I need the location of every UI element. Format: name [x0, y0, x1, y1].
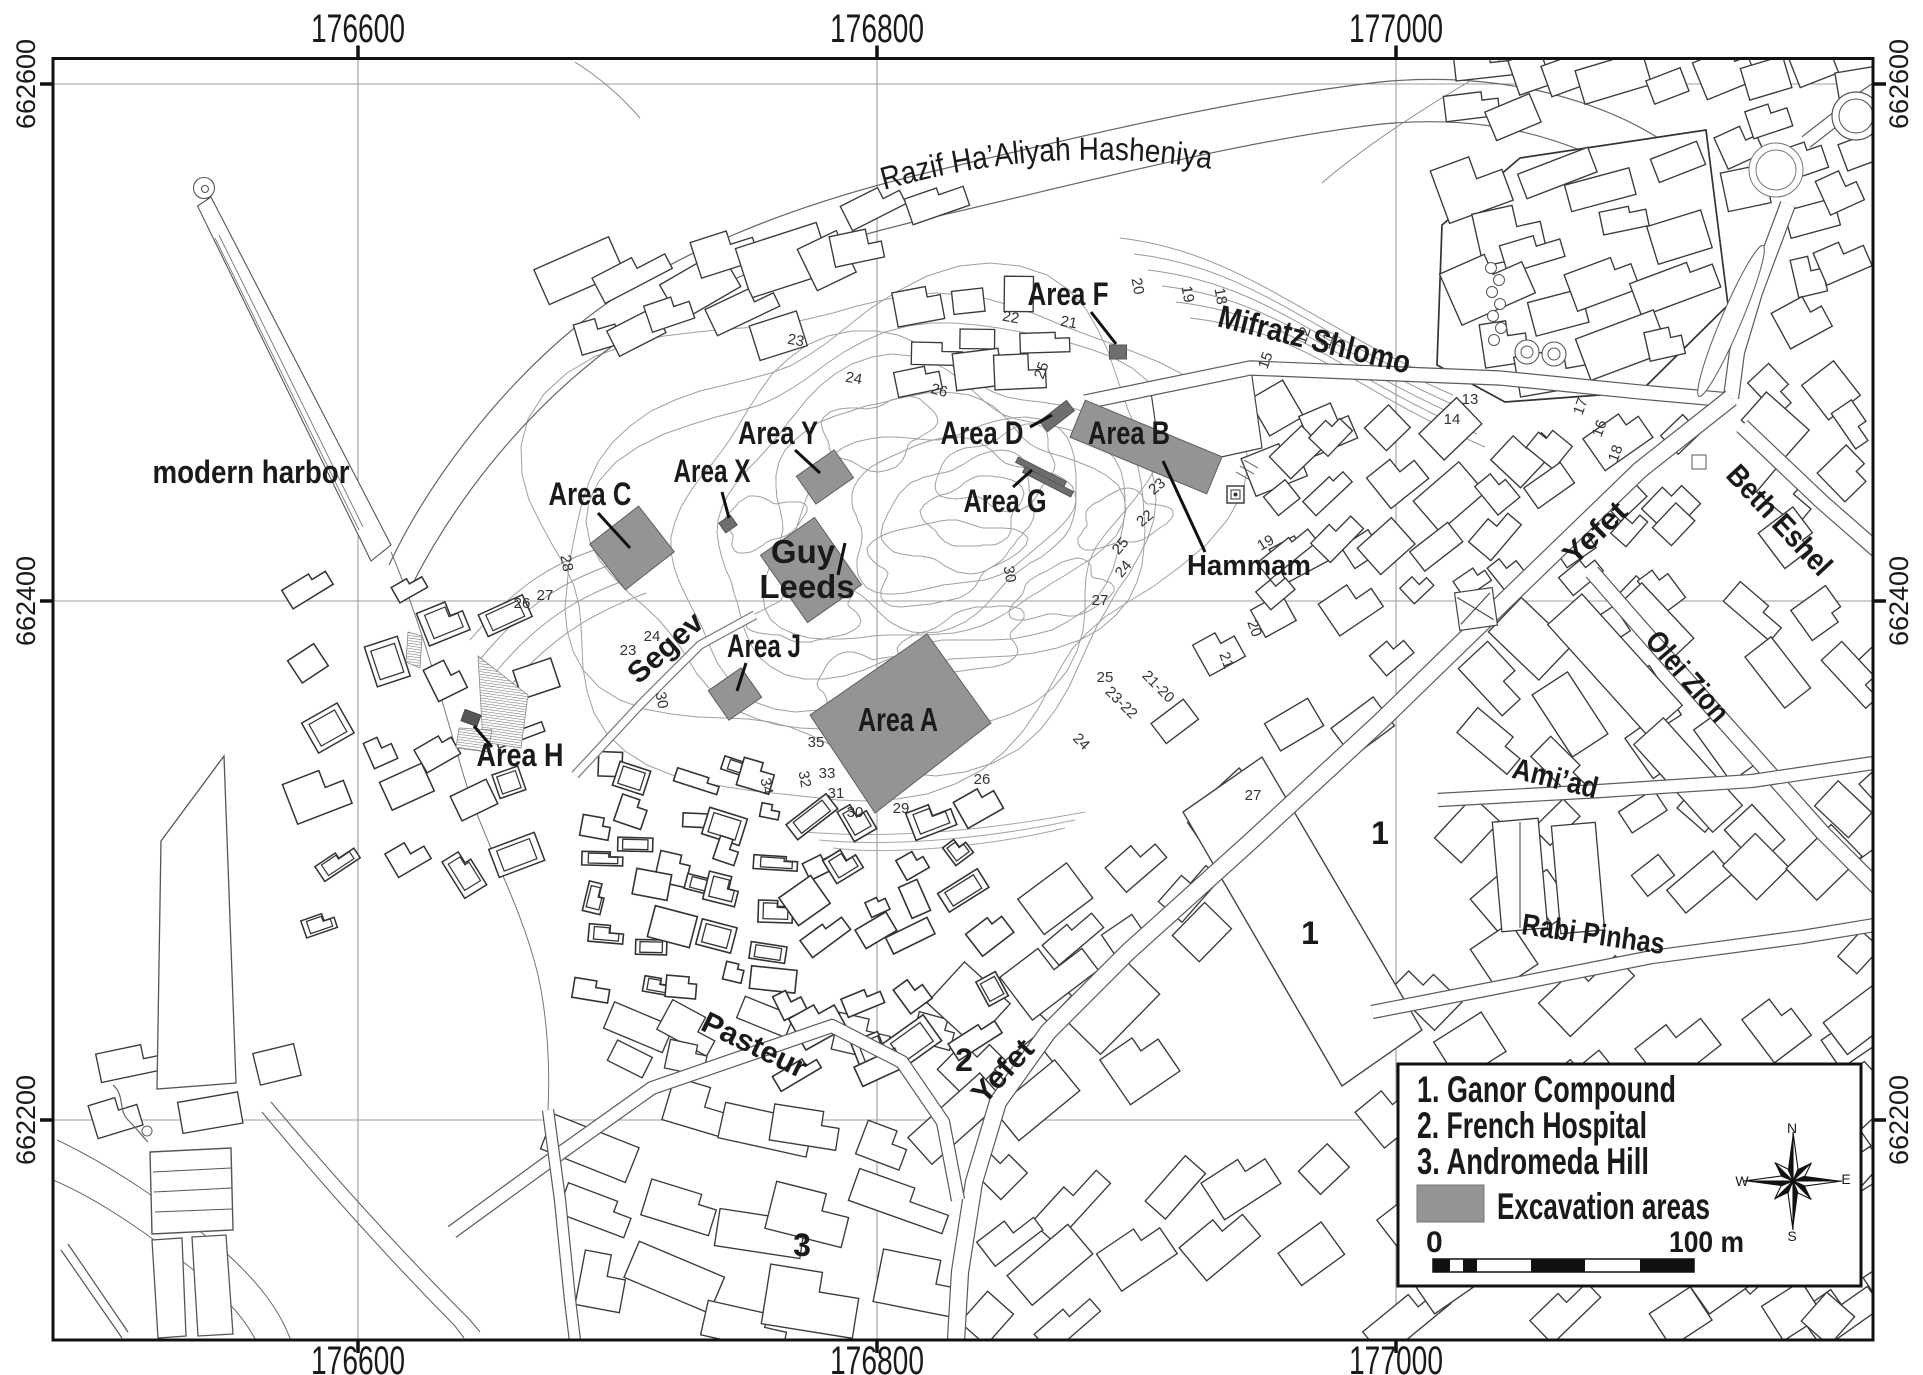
svg-text:19: 19	[1178, 285, 1198, 304]
svg-text:662600: 662600	[1884, 39, 1914, 129]
svg-text:28: 28	[557, 554, 577, 573]
svg-text:27: 27	[1245, 787, 1262, 804]
svg-text:20: 20	[1128, 277, 1148, 296]
svg-text:Area B: Area B	[1088, 415, 1170, 451]
svg-text:Excavation areas: Excavation areas	[1497, 1186, 1710, 1227]
svg-text:Area X: Area X	[674, 453, 751, 489]
svg-text:662200: 662200	[11, 1075, 41, 1165]
svg-text:Area D: Area D	[941, 415, 1024, 451]
svg-text:662400: 662400	[1884, 556, 1914, 646]
svg-text:Area C: Area C	[549, 476, 632, 512]
svg-text:Leeds: Leeds	[759, 568, 854, 605]
svg-text:30: 30	[1000, 565, 1020, 584]
svg-text:Area J: Area J	[727, 628, 801, 664]
svg-text:662600: 662600	[11, 39, 41, 129]
svg-text:27: 27	[1092, 592, 1109, 609]
svg-text:2: 2	[955, 1042, 973, 1078]
svg-text:176600: 176600	[311, 7, 405, 51]
svg-text:Area G: Area G	[964, 483, 1047, 519]
svg-text:2. French Hospital: 2. French Hospital	[1417, 1105, 1647, 1146]
svg-text:14: 14	[1444, 411, 1461, 428]
svg-text:E: E	[1841, 1171, 1850, 1187]
svg-text:Guy: Guy	[771, 533, 836, 570]
svg-text:26: 26	[974, 771, 991, 788]
svg-text:30: 30	[847, 804, 864, 821]
svg-text:35: 35	[808, 734, 825, 751]
svg-text:24: 24	[844, 369, 863, 389]
svg-text:Area F: Area F	[1028, 276, 1109, 312]
svg-text:662400: 662400	[11, 556, 41, 646]
svg-text:W: W	[1735, 1173, 1749, 1189]
svg-text:177000: 177000	[1349, 7, 1443, 51]
svg-text:Area A: Area A	[858, 701, 938, 738]
svg-text:100 m: 100 m	[1669, 1226, 1744, 1259]
svg-text:22: 22	[1001, 308, 1020, 328]
svg-text:176600: 176600	[311, 1339, 405, 1375]
svg-text:0: 0	[1426, 1226, 1443, 1259]
svg-text:S: S	[1787, 1228, 1796, 1244]
svg-text:13: 13	[1462, 391, 1479, 408]
svg-text:176800: 176800	[830, 1339, 924, 1375]
svg-text:662200: 662200	[1884, 1075, 1914, 1165]
svg-text:32: 32	[795, 770, 815, 789]
svg-text:26: 26	[514, 595, 531, 612]
svg-text:31: 31	[828, 785, 845, 802]
svg-text:3. Andromeda Hill: 3. Andromeda Hill	[1417, 1141, 1649, 1182]
svg-text:Area H: Area H	[477, 737, 564, 773]
svg-text:Area Y: Area Y	[738, 415, 818, 451]
svg-text:176800: 176800	[830, 7, 924, 51]
svg-text:25: 25	[1097, 669, 1114, 686]
svg-text:1. Ganor Compound: 1. Ganor Compound	[1417, 1069, 1676, 1110]
svg-text:1: 1	[1371, 815, 1389, 851]
svg-text:3: 3	[793, 1227, 811, 1263]
svg-text:23: 23	[786, 331, 805, 351]
svg-text:Hammam: Hammam	[1187, 550, 1311, 582]
svg-text:33: 33	[819, 765, 836, 782]
svg-text:30: 30	[652, 691, 672, 710]
svg-text:modern harbor: modern harbor	[153, 454, 350, 490]
svg-text:1: 1	[1301, 915, 1319, 951]
svg-text:177000: 177000	[1349, 1339, 1443, 1375]
svg-text:27: 27	[537, 587, 554, 604]
svg-text:N: N	[1787, 1120, 1797, 1136]
svg-text:29: 29	[893, 800, 910, 817]
svg-text:34: 34	[757, 777, 777, 796]
svg-text:21: 21	[1059, 313, 1078, 333]
